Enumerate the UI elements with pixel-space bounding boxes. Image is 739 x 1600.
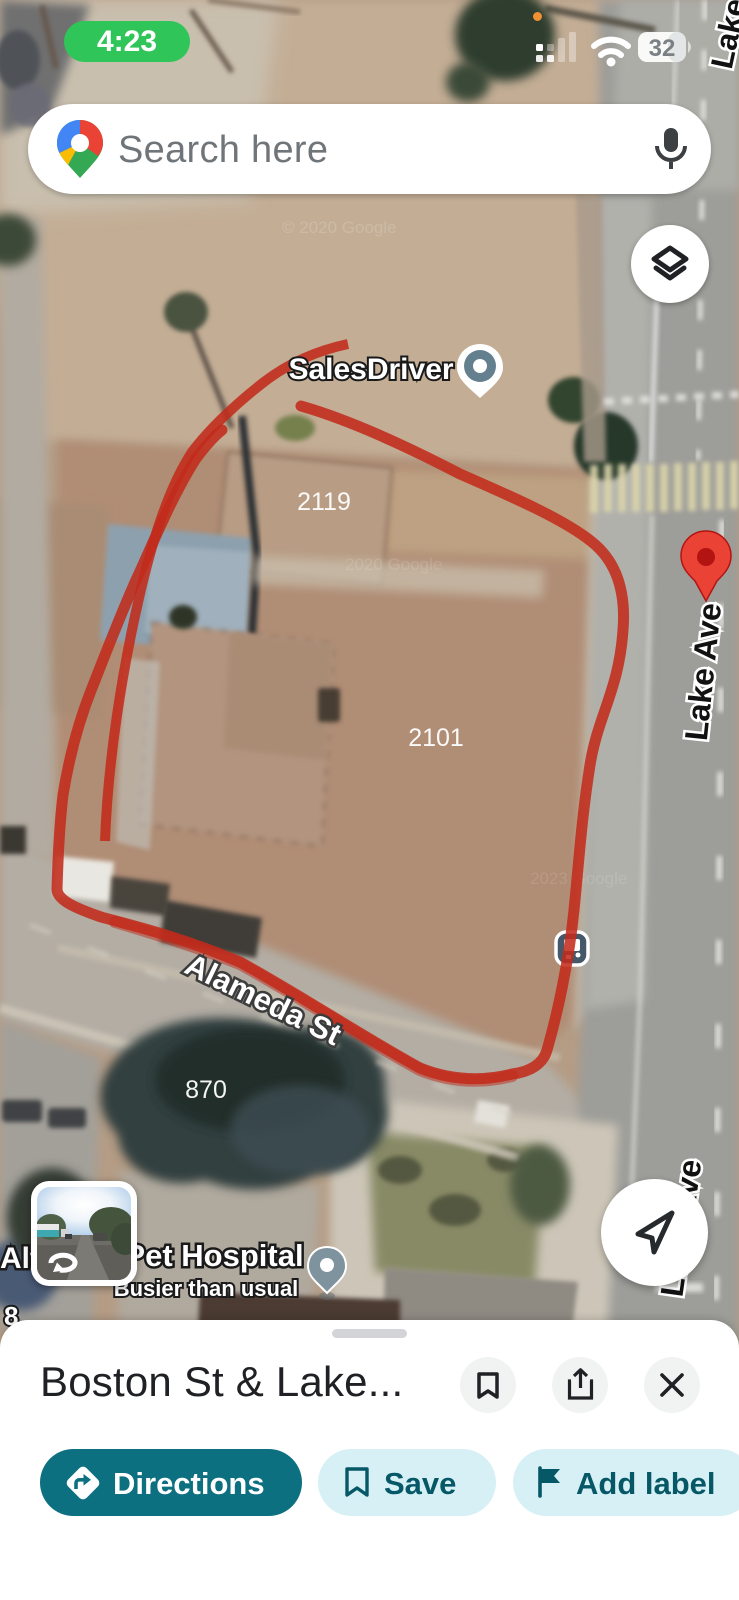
svg-text:Pet Hospital: Pet Hospital (124, 1238, 303, 1273)
svg-text:870: 870 (185, 1076, 227, 1104)
svg-text:2101: 2101 (408, 724, 464, 752)
svg-text:32: 32 (649, 35, 676, 62)
svg-text:Busier than usual: Busier than usual (114, 1276, 299, 1301)
svg-text:2119: 2119 (297, 488, 351, 516)
svg-text:2020 Google: 2020 Google (345, 555, 442, 574)
svg-text:© 2020 Google: © 2020 Google (282, 218, 397, 237)
svg-text:SalesDriver: SalesDriver (288, 353, 453, 386)
